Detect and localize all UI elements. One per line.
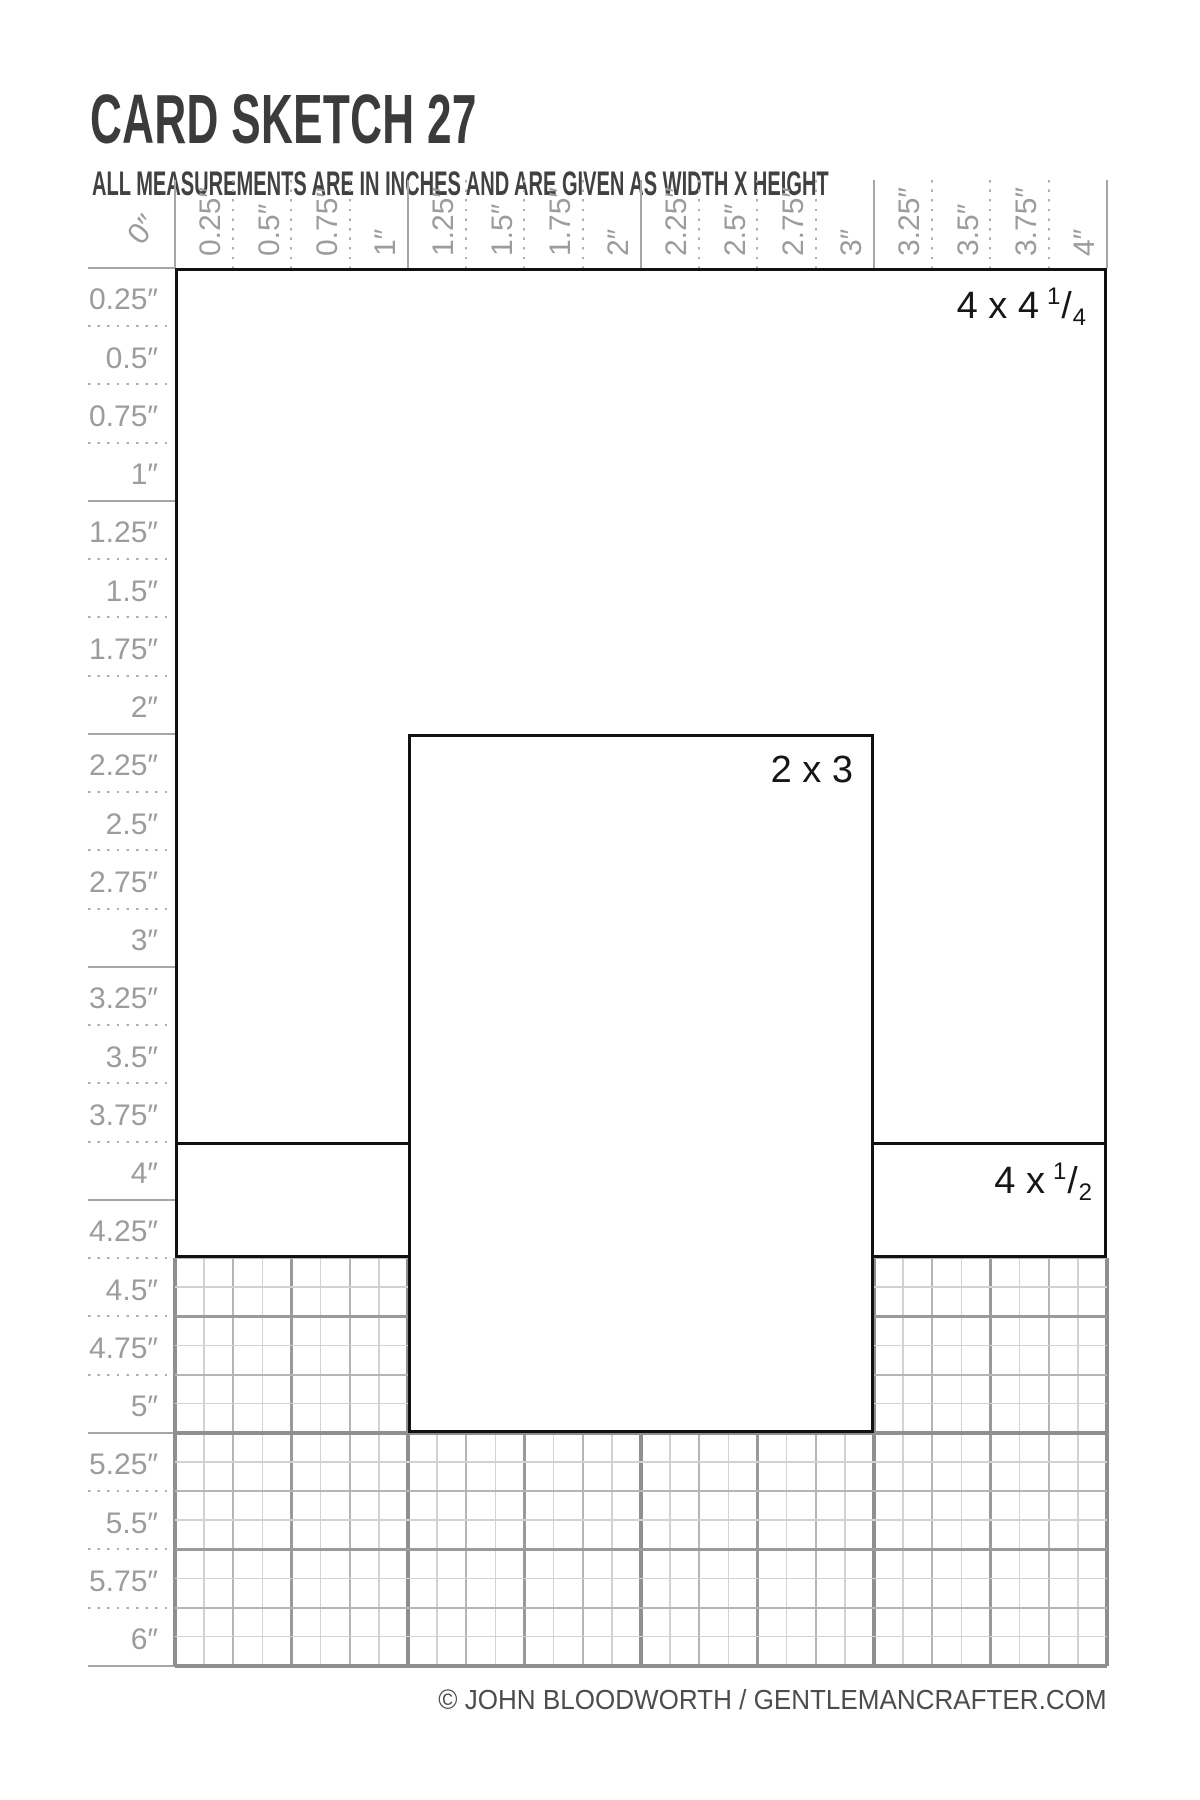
- ruler-label: 3.75″: [1009, 146, 1045, 256]
- ruler-label: 1.75″: [543, 146, 579, 256]
- ruler-tick: [931, 180, 933, 268]
- ruler-tick: [232, 180, 234, 268]
- ruler-label: 2.5″: [40, 807, 158, 843]
- ruler-tick: [88, 1374, 170, 1376]
- ruler-tick: [88, 1024, 170, 1026]
- ruler-tick: [88, 1257, 170, 1259]
- ruler-tick: [88, 442, 170, 444]
- ruler-tick: [88, 1141, 170, 1143]
- ruler-label: 1.25″: [40, 515, 158, 551]
- ruler-label: 0.25″: [193, 146, 229, 256]
- ruler-label: 1.5″: [485, 146, 521, 256]
- ruler-tick: [88, 383, 170, 385]
- grid-line: [175, 1664, 1107, 1668]
- ruler-label: 0.75″: [40, 399, 158, 435]
- ruler-tick: [88, 325, 170, 327]
- ruler-tick: [88, 1315, 170, 1317]
- ruler-tick: [88, 849, 170, 851]
- ruler-label: 2.75″: [776, 146, 812, 256]
- ruler-label: 1.25″: [426, 146, 462, 256]
- panel-size-fraction: 1/2: [1053, 1160, 1092, 1202]
- ruler-label: 1.5″: [40, 574, 158, 610]
- ruler-label: 6″: [40, 1622, 158, 1658]
- ruler-label: 5.5″: [40, 1506, 158, 1542]
- ruler-tick: [349, 180, 351, 268]
- ruler-label: 3″: [40, 923, 158, 959]
- ruler-tick: [88, 1607, 170, 1609]
- panel-size-text: 2 x 3: [771, 749, 853, 791]
- ruler-label: 2.25″: [659, 146, 695, 256]
- ruler-label: 3″: [834, 146, 870, 256]
- ruler-tick: [698, 180, 700, 268]
- ruler-tick: [88, 500, 175, 503]
- ruler-tick: [88, 267, 175, 270]
- ruler-tick: [88, 675, 170, 677]
- ruler-label: 5.25″: [40, 1447, 158, 1483]
- ruler-label: 3.25″: [40, 981, 158, 1017]
- ruler-tick: [1106, 180, 1109, 268]
- ruler-tick: [88, 908, 170, 910]
- ruler-label: 4″: [1067, 146, 1103, 256]
- ruler-tick: [88, 558, 170, 560]
- ruler-label: 3.5″: [40, 1040, 158, 1076]
- panel-size-label: 4 x 41/4: [957, 283, 1086, 332]
- ruler-tick: [88, 1490, 170, 1492]
- ruler-label: 3.25″: [892, 146, 928, 256]
- sketch-title: CARD SKETCH 27: [90, 84, 477, 154]
- ruler-tick: [290, 180, 292, 268]
- ruler-label: 2.75″: [40, 865, 158, 901]
- ruler-label: 0.5″: [252, 146, 288, 256]
- ruler-tick: [989, 180, 991, 268]
- ruler-tick: [756, 180, 758, 268]
- grid-line: [175, 1461, 1107, 1462]
- ruler-label: 4″: [40, 1156, 158, 1192]
- ruler-tick: [88, 616, 170, 618]
- ruler-label: 5″: [40, 1389, 158, 1425]
- ruler-label: 4.75″: [40, 1331, 158, 1367]
- ruler-label: 1″: [40, 457, 158, 493]
- ruler-label: 2″: [601, 146, 637, 256]
- ruler-tick: [88, 1548, 170, 1550]
- ruler-label: 0.5″: [40, 341, 158, 377]
- ruler-label: 3.75″: [40, 1098, 158, 1134]
- grid-line: [175, 1490, 1107, 1492]
- panel-size-text: 4 x 4: [957, 285, 1039, 327]
- ruler-label: 3.5″: [951, 146, 987, 256]
- ruler-label: 1″: [368, 146, 404, 256]
- grid-line: [175, 1548, 1107, 1551]
- card-sketch-page: CARD SKETCH 27 ALL MEASUREMENTS ARE IN I…: [0, 0, 1200, 1800]
- ruler-tick: [582, 180, 584, 268]
- ruler-label: 2″: [40, 690, 158, 726]
- grid-line: [175, 1578, 1107, 1579]
- panel-2x3: 2 x 3: [408, 734, 874, 1433]
- ruler-label: 2.25″: [40, 748, 158, 784]
- ruler-tick: [88, 1082, 170, 1084]
- ruler-label: 2.5″: [718, 146, 754, 256]
- ruler-label: 1.75″: [40, 632, 158, 668]
- ruler-tick: [1048, 180, 1050, 268]
- credit-line: © JOHN BLOODWORTH / GENTLEMANCRAFTER.COM: [439, 1684, 1107, 1716]
- ruler-label: 4.25″: [40, 1214, 158, 1250]
- panel-size-label: 2 x 3: [771, 749, 853, 793]
- ruler-tick: [88, 1665, 175, 1668]
- grid-line: [175, 1519, 1107, 1520]
- panel-size-text: 4 x: [994, 1160, 1045, 1202]
- ruler-label: 4.5″: [40, 1273, 158, 1309]
- ruler-tick: [407, 180, 410, 268]
- ruler-tick: [523, 180, 525, 268]
- ruler-tick: [815, 180, 817, 268]
- ruler-tick: [465, 180, 467, 268]
- ruler-tick: [88, 1199, 175, 1202]
- ruler-tick: [640, 180, 643, 268]
- grid-line: [175, 1636, 1107, 1637]
- ruler-tick: [174, 180, 177, 268]
- ruler-tick: [88, 1432, 175, 1435]
- ruler-label: 0.25″: [40, 282, 158, 318]
- ruler-tick: [88, 791, 170, 793]
- ruler-tick: [873, 180, 876, 268]
- panel-size-fraction: 1/4: [1047, 285, 1086, 327]
- ruler-label: 0.75″: [310, 146, 346, 256]
- ruler-label: 5.75″: [40, 1564, 158, 1600]
- grid-line: [175, 1607, 1107, 1609]
- ruler-tick: [88, 966, 175, 969]
- ruler-tick: [88, 733, 175, 736]
- panel-size-label: 4 x1/2: [994, 1158, 1092, 1207]
